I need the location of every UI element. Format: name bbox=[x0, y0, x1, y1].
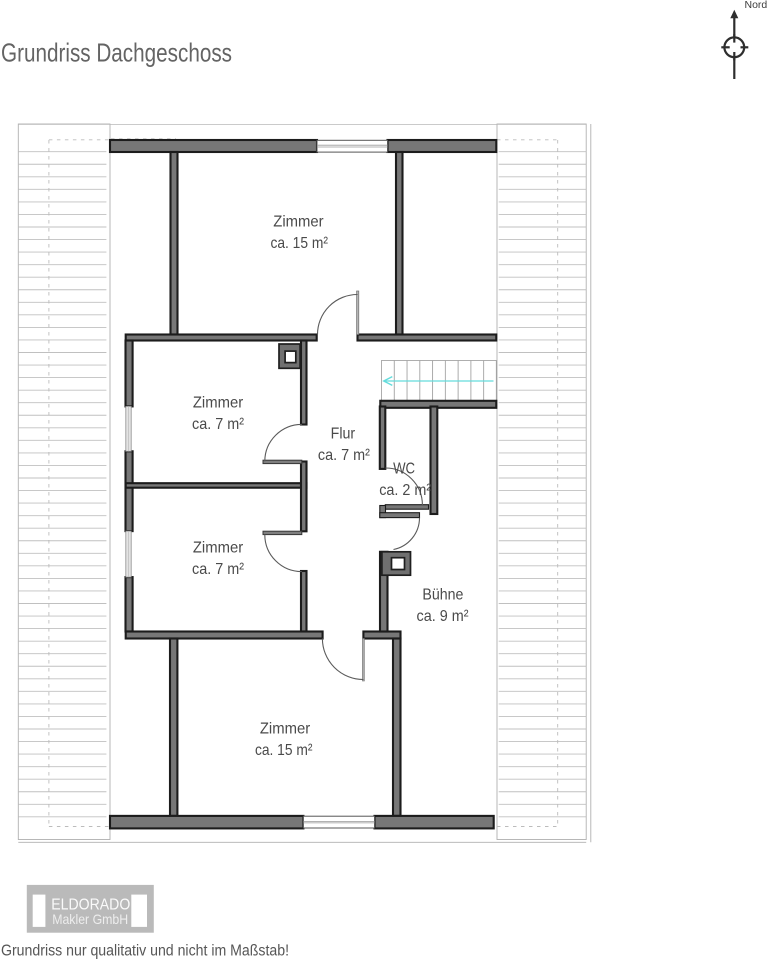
svg-text:Zimmer: Zimmer bbox=[193, 394, 243, 411]
svg-text:ca. 15 m²: ca. 15 m² bbox=[270, 235, 328, 252]
svg-text:ca. 9 m²: ca. 9 m² bbox=[417, 608, 469, 625]
svg-text:Grundriss Dachgeschoss: Grundriss Dachgeschoss bbox=[1, 38, 232, 68]
svg-text:ca. 7 m²: ca. 7 m² bbox=[192, 416, 244, 433]
svg-text:ca. 7 m²: ca. 7 m² bbox=[192, 561, 244, 578]
svg-text:Zimmer: Zimmer bbox=[193, 540, 243, 557]
svg-text:Bühne: Bühne bbox=[422, 587, 463, 604]
svg-text:ca. 7 m²: ca. 7 m² bbox=[318, 447, 370, 464]
svg-text:ca. 15 m²: ca. 15 m² bbox=[255, 742, 313, 759]
svg-text:WC: WC bbox=[393, 460, 415, 477]
svg-text:Nord: Nord bbox=[745, 0, 768, 11]
svg-text:Zimmer: Zimmer bbox=[260, 720, 310, 737]
svg-text:ca. 2 m²: ca. 2 m² bbox=[379, 482, 431, 499]
svg-text:Flur: Flur bbox=[331, 425, 356, 442]
svg-text:Grundriss nur qualitativ und n: Grundriss nur qualitativ und nicht im Ma… bbox=[1, 943, 289, 960]
svg-text:Zimmer: Zimmer bbox=[273, 214, 323, 231]
svg-text:Makler GmbH: Makler GmbH bbox=[52, 911, 128, 927]
